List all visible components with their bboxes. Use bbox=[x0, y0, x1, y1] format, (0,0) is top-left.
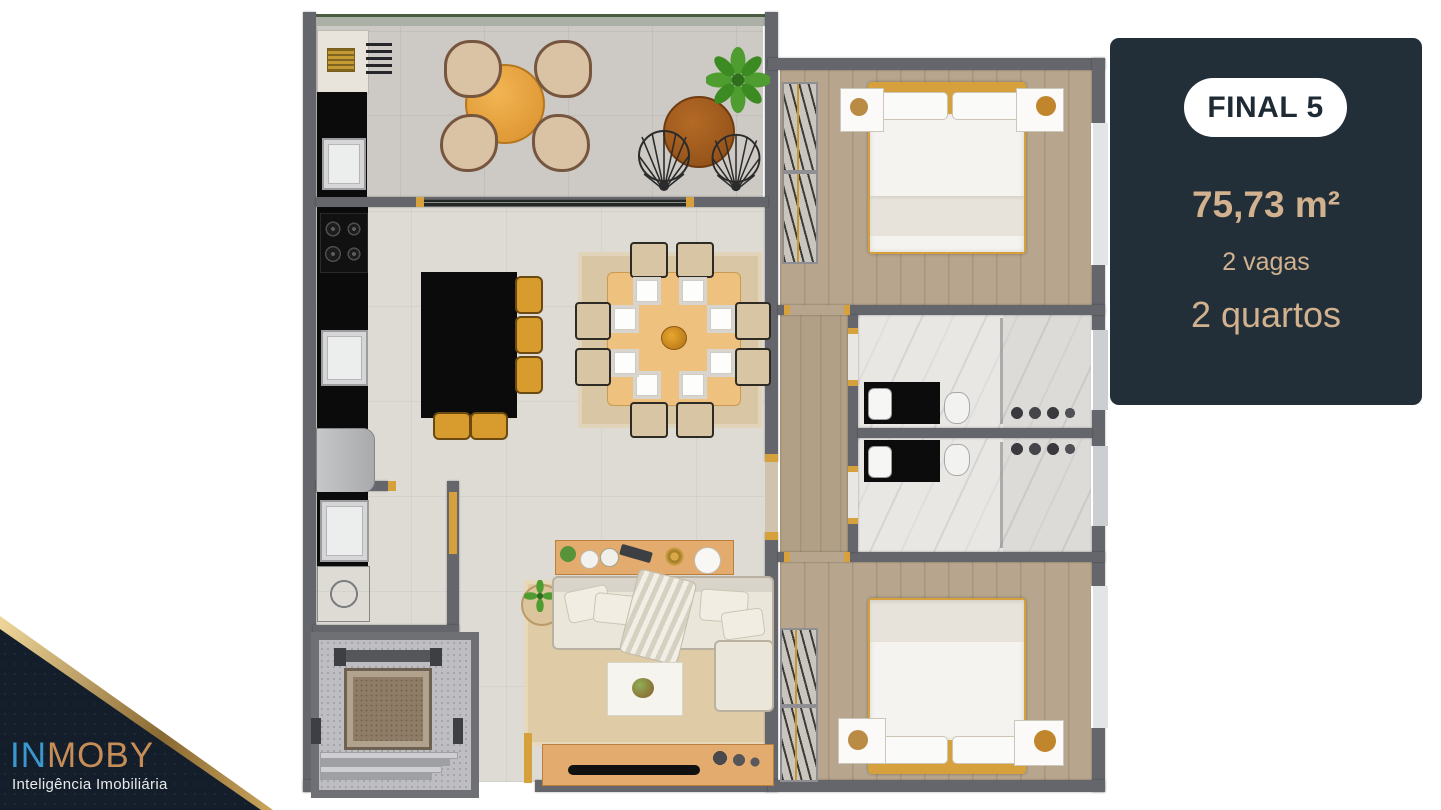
bed2-pillow bbox=[878, 736, 948, 764]
place-setting bbox=[636, 374, 658, 396]
bedroom2-door-opening bbox=[790, 552, 844, 562]
island-stool bbox=[515, 276, 543, 314]
hallway-floor bbox=[780, 308, 848, 560]
bbq-grill bbox=[327, 48, 355, 72]
door-jamb bbox=[416, 197, 424, 207]
balcony-glass-door bbox=[424, 199, 686, 206]
dining-chair bbox=[735, 348, 771, 386]
bathroom2-sink bbox=[868, 446, 892, 478]
island-stool bbox=[515, 356, 543, 394]
door-jamb bbox=[784, 305, 790, 315]
shower1-fixtures bbox=[1008, 406, 1080, 422]
fridge bbox=[316, 428, 375, 493]
elevator-door-notch bbox=[311, 718, 321, 744]
coffee-table-decor bbox=[632, 678, 654, 698]
wall-bathrooms-divider bbox=[858, 428, 1092, 438]
tv bbox=[568, 765, 700, 775]
sideboard-plant bbox=[560, 546, 576, 562]
dining-chair bbox=[575, 302, 611, 340]
balcony-chair bbox=[532, 114, 590, 172]
nightstand-decor bbox=[848, 730, 868, 750]
entry-door bbox=[524, 733, 532, 783]
laundry-sink bbox=[320, 500, 369, 562]
dining-chair bbox=[735, 302, 771, 340]
dining-chair bbox=[676, 242, 714, 278]
place-setting bbox=[614, 352, 636, 374]
balcony-sink bbox=[322, 138, 366, 190]
brand-tagline: Inteligência Imobiliária bbox=[12, 776, 168, 793]
table-centerpiece bbox=[661, 326, 687, 350]
dining-chair bbox=[676, 402, 714, 438]
bed1-blanket bbox=[870, 196, 1024, 236]
hall-opening bbox=[765, 462, 778, 532]
dining-chair bbox=[630, 242, 668, 278]
dining-chair bbox=[630, 402, 668, 438]
place-setting bbox=[682, 280, 704, 302]
bedroom1-wardrobe bbox=[782, 172, 818, 264]
stair-tread bbox=[320, 773, 432, 780]
bed1-pillow bbox=[878, 92, 948, 120]
kitchen-sink bbox=[321, 330, 368, 386]
door-jamb bbox=[784, 552, 790, 562]
shower2-fixtures bbox=[1008, 442, 1080, 458]
elevator-mat bbox=[344, 668, 432, 750]
bathroom2-door-opening bbox=[848, 472, 858, 518]
sideboard-tray bbox=[580, 550, 599, 569]
sofa-chaise bbox=[714, 640, 774, 712]
stair-tread bbox=[320, 752, 458, 759]
brand-logo-suffix: MOBY bbox=[47, 736, 154, 775]
place-setting bbox=[636, 280, 658, 302]
wire-chair-icon bbox=[626, 128, 702, 194]
sideboard-plant bbox=[600, 548, 619, 567]
bedroom1-wardrobe bbox=[782, 82, 818, 172]
stair-tread bbox=[320, 759, 450, 766]
unit-badge: FINAL 5 bbox=[1184, 78, 1347, 137]
door-jamb bbox=[848, 380, 858, 386]
island-stool bbox=[515, 316, 543, 354]
wall-bottom-right-wing bbox=[768, 780, 1105, 792]
bathroom1-door-opening bbox=[848, 334, 858, 380]
bed1-pillow bbox=[952, 92, 1022, 120]
bed2-blanket bbox=[870, 600, 1024, 642]
place-setting bbox=[710, 308, 732, 330]
bedroom2-wardrobe bbox=[780, 706, 818, 782]
place-setting bbox=[614, 308, 636, 330]
bathroom1-window bbox=[1091, 330, 1110, 410]
stove bbox=[320, 213, 368, 273]
balcony-chair bbox=[440, 114, 498, 172]
bedroom1-door-opening bbox=[790, 305, 844, 315]
kitchen-island bbox=[421, 272, 517, 418]
elevator-handle bbox=[430, 648, 442, 666]
balcony-railing bbox=[316, 14, 768, 26]
nightstand-decor bbox=[1034, 730, 1056, 752]
balcony-chair bbox=[534, 40, 592, 98]
door-jamb bbox=[844, 552, 850, 562]
unit-area: 75,73 m² bbox=[1110, 184, 1422, 226]
console-knobs bbox=[712, 750, 764, 776]
elevator-lintel bbox=[346, 650, 430, 662]
unit-info-card: FINAL 5 75,73 m² 2 vagas 2 quartos bbox=[1110, 38, 1422, 405]
wire-chair-icon bbox=[700, 132, 772, 194]
elevator-door-notch bbox=[453, 718, 463, 744]
door-jamb bbox=[765, 532, 778, 540]
elevator-handle bbox=[334, 648, 346, 666]
door-jamb bbox=[686, 197, 694, 207]
door-jamb bbox=[388, 481, 396, 491]
shower1-glass bbox=[1000, 318, 1003, 424]
island-stool bbox=[470, 412, 508, 440]
brand-logo-prefix: IN bbox=[10, 736, 47, 775]
wall-top-right-wing bbox=[768, 58, 1105, 70]
bathroom2-window bbox=[1091, 446, 1110, 526]
bathroom1-toilet bbox=[944, 392, 970, 424]
bedroom1-window bbox=[1091, 123, 1110, 265]
bedroom2-wardrobe bbox=[780, 628, 818, 706]
plant-icon bbox=[706, 42, 770, 118]
place-setting bbox=[682, 374, 704, 396]
stair-tread bbox=[320, 766, 442, 773]
bathroom1-sink bbox=[868, 388, 892, 420]
nightstand-decor bbox=[1036, 96, 1056, 116]
washer bbox=[317, 566, 370, 622]
sunburst-decor bbox=[663, 545, 686, 568]
sideboard-dish bbox=[694, 547, 721, 574]
balcony-vent bbox=[366, 40, 392, 74]
dining-chair bbox=[575, 348, 611, 386]
brand-logo: INMOBY bbox=[10, 736, 154, 776]
bed2-pillow bbox=[952, 736, 1022, 764]
unit-badge-label: FINAL 5 bbox=[1207, 91, 1323, 125]
door-jamb bbox=[848, 328, 858, 334]
bedroom2-window bbox=[1091, 586, 1110, 728]
shower2-glass bbox=[1000, 442, 1003, 548]
service-door bbox=[449, 492, 457, 554]
door-jamb bbox=[848, 466, 858, 472]
door-jamb bbox=[765, 454, 778, 462]
door-jamb bbox=[844, 305, 850, 315]
door-jamb bbox=[848, 518, 858, 524]
slide-canvas: FINAL 5 75,73 m² 2 vagas 2 quartos INMOB… bbox=[0, 0, 1441, 810]
sofa-pillow bbox=[720, 607, 765, 641]
unit-bedrooms: 2 quartos bbox=[1110, 294, 1422, 336]
unit-parking: 2 vagas bbox=[1110, 248, 1422, 277]
nightstand-decor bbox=[850, 98, 868, 116]
island-stool bbox=[433, 412, 471, 440]
place-setting bbox=[710, 352, 732, 374]
bathroom2-toilet bbox=[944, 444, 970, 476]
